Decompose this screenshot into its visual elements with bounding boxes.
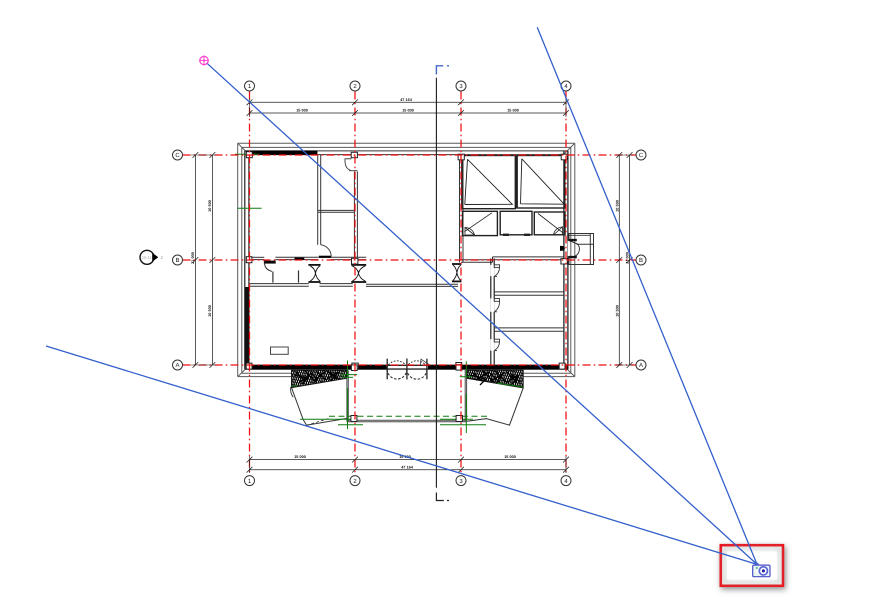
svg-text:C: C <box>639 152 644 159</box>
svg-text:10 500: 10 500 <box>615 305 619 317</box>
svg-text:C: C <box>175 152 180 159</box>
svg-text:47 164: 47 164 <box>400 98 413 102</box>
svg-text:JS-11: JS-11 <box>141 255 152 260</box>
svg-text:15 000: 15 000 <box>402 109 414 113</box>
svg-text:15 000: 15 000 <box>507 109 519 113</box>
svg-text:10 500: 10 500 <box>208 305 212 317</box>
svg-text:21 000: 21 000 <box>626 252 630 264</box>
svg-text:47 164: 47 164 <box>401 465 414 469</box>
svg-text:10 500: 10 500 <box>615 200 619 212</box>
svg-text:15 000: 15 000 <box>296 109 308 113</box>
svg-text:10 500: 10 500 <box>208 200 212 212</box>
svg-text:15 000: 15 000 <box>294 455 306 459</box>
svg-text:B: B <box>175 257 179 264</box>
svg-text:21 000: 21 000 <box>191 252 195 264</box>
svg-text:B: B <box>639 257 643 264</box>
svg-text:15 000: 15 000 <box>504 455 516 459</box>
svg-text:A: A <box>175 362 179 369</box>
svg-text:A: A <box>639 362 643 369</box>
